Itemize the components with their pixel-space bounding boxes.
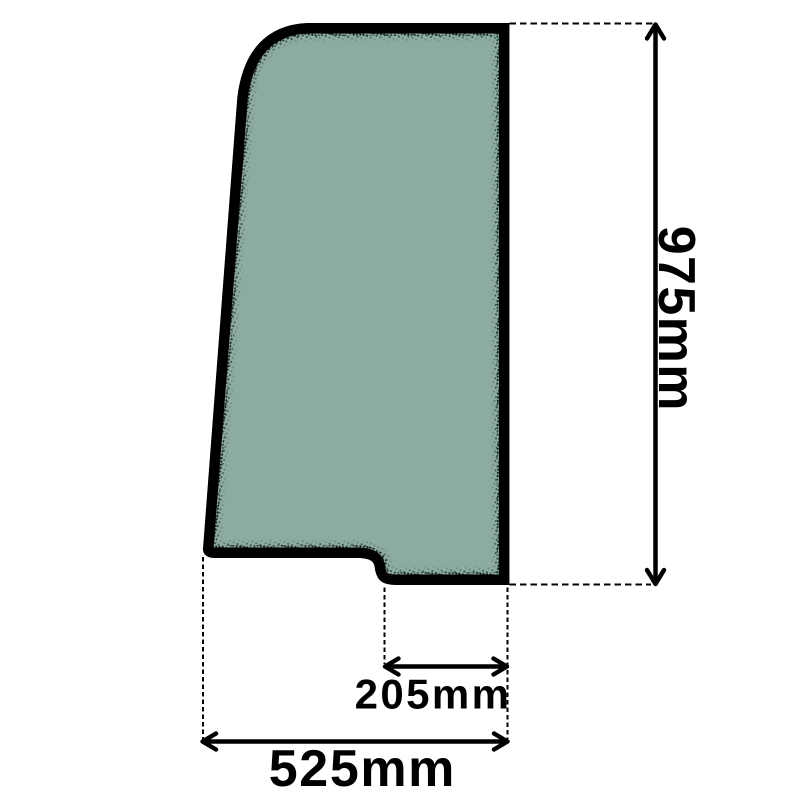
svg-text:525mm: 525mm <box>269 740 456 798</box>
svg-text:205mm: 205mm <box>355 670 512 717</box>
svg-text:975mm: 975mm <box>647 226 705 412</box>
